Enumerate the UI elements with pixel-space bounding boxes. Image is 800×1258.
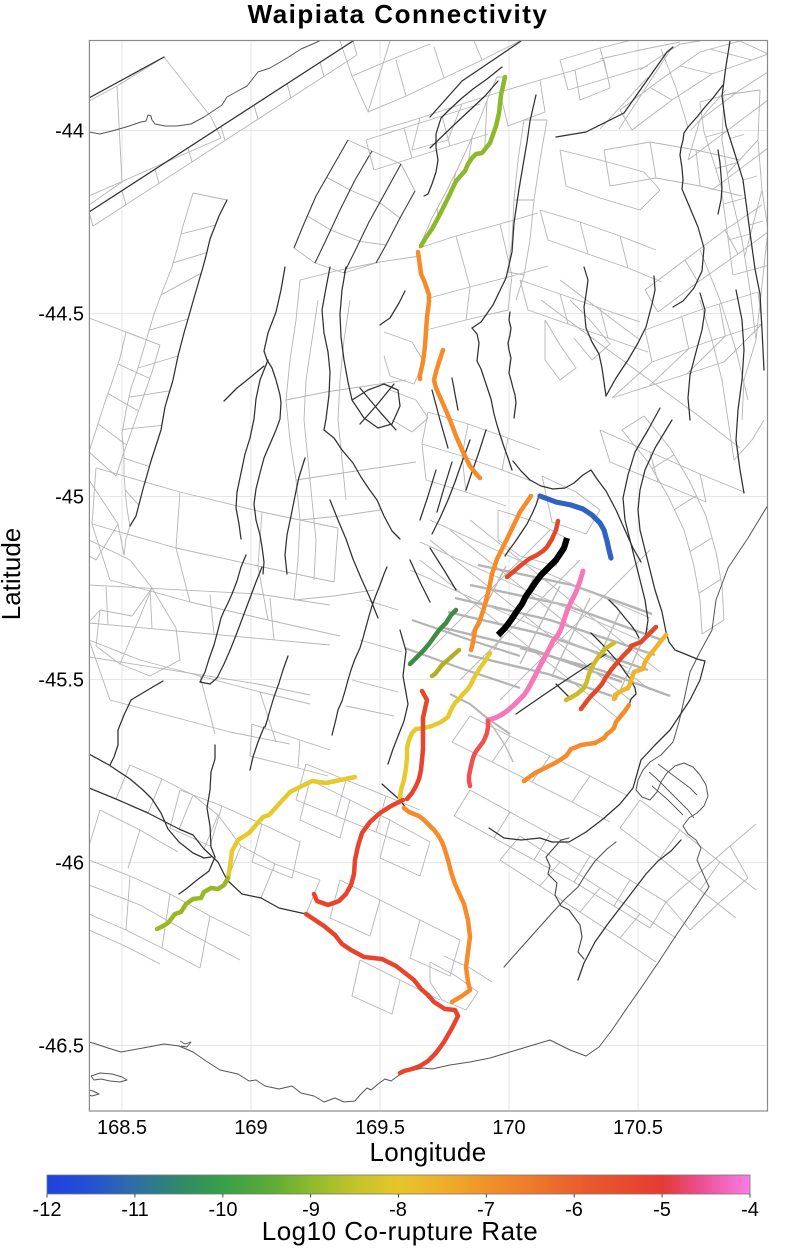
svg-text:-6: -6 (565, 1199, 583, 1221)
svg-text:Log10 Co-rupture Rate: Log10 Co-rupture Rate (262, 1216, 538, 1246)
svg-text:-4: -4 (741, 1199, 759, 1221)
svg-text:170.5: 170.5 (613, 1117, 663, 1139)
svg-text:-46.5: -46.5 (38, 1036, 84, 1058)
svg-text:-45.5: -45.5 (38, 670, 84, 692)
svg-text:Waipiata Connectivity: Waipiata Connectivity (248, 0, 549, 29)
svg-text:Longitude: Longitude (370, 1137, 487, 1167)
svg-text:170: 170 (492, 1117, 525, 1139)
svg-text:-12: -12 (33, 1199, 62, 1221)
svg-text:-5: -5 (653, 1199, 671, 1221)
svg-text:-44.5: -44.5 (38, 304, 84, 326)
svg-text:169: 169 (234, 1117, 267, 1139)
svg-text:-44: -44 (55, 121, 84, 143)
svg-text:-11: -11 (121, 1199, 148, 1221)
svg-text:Latitude: Latitude (0, 528, 26, 621)
svg-text:168.5: 168.5 (97, 1117, 147, 1139)
svg-text:-46: -46 (55, 853, 84, 875)
svg-text:-10: -10 (209, 1199, 238, 1221)
svg-text:169.5: 169.5 (355, 1117, 405, 1139)
svg-text:-45: -45 (55, 487, 84, 509)
